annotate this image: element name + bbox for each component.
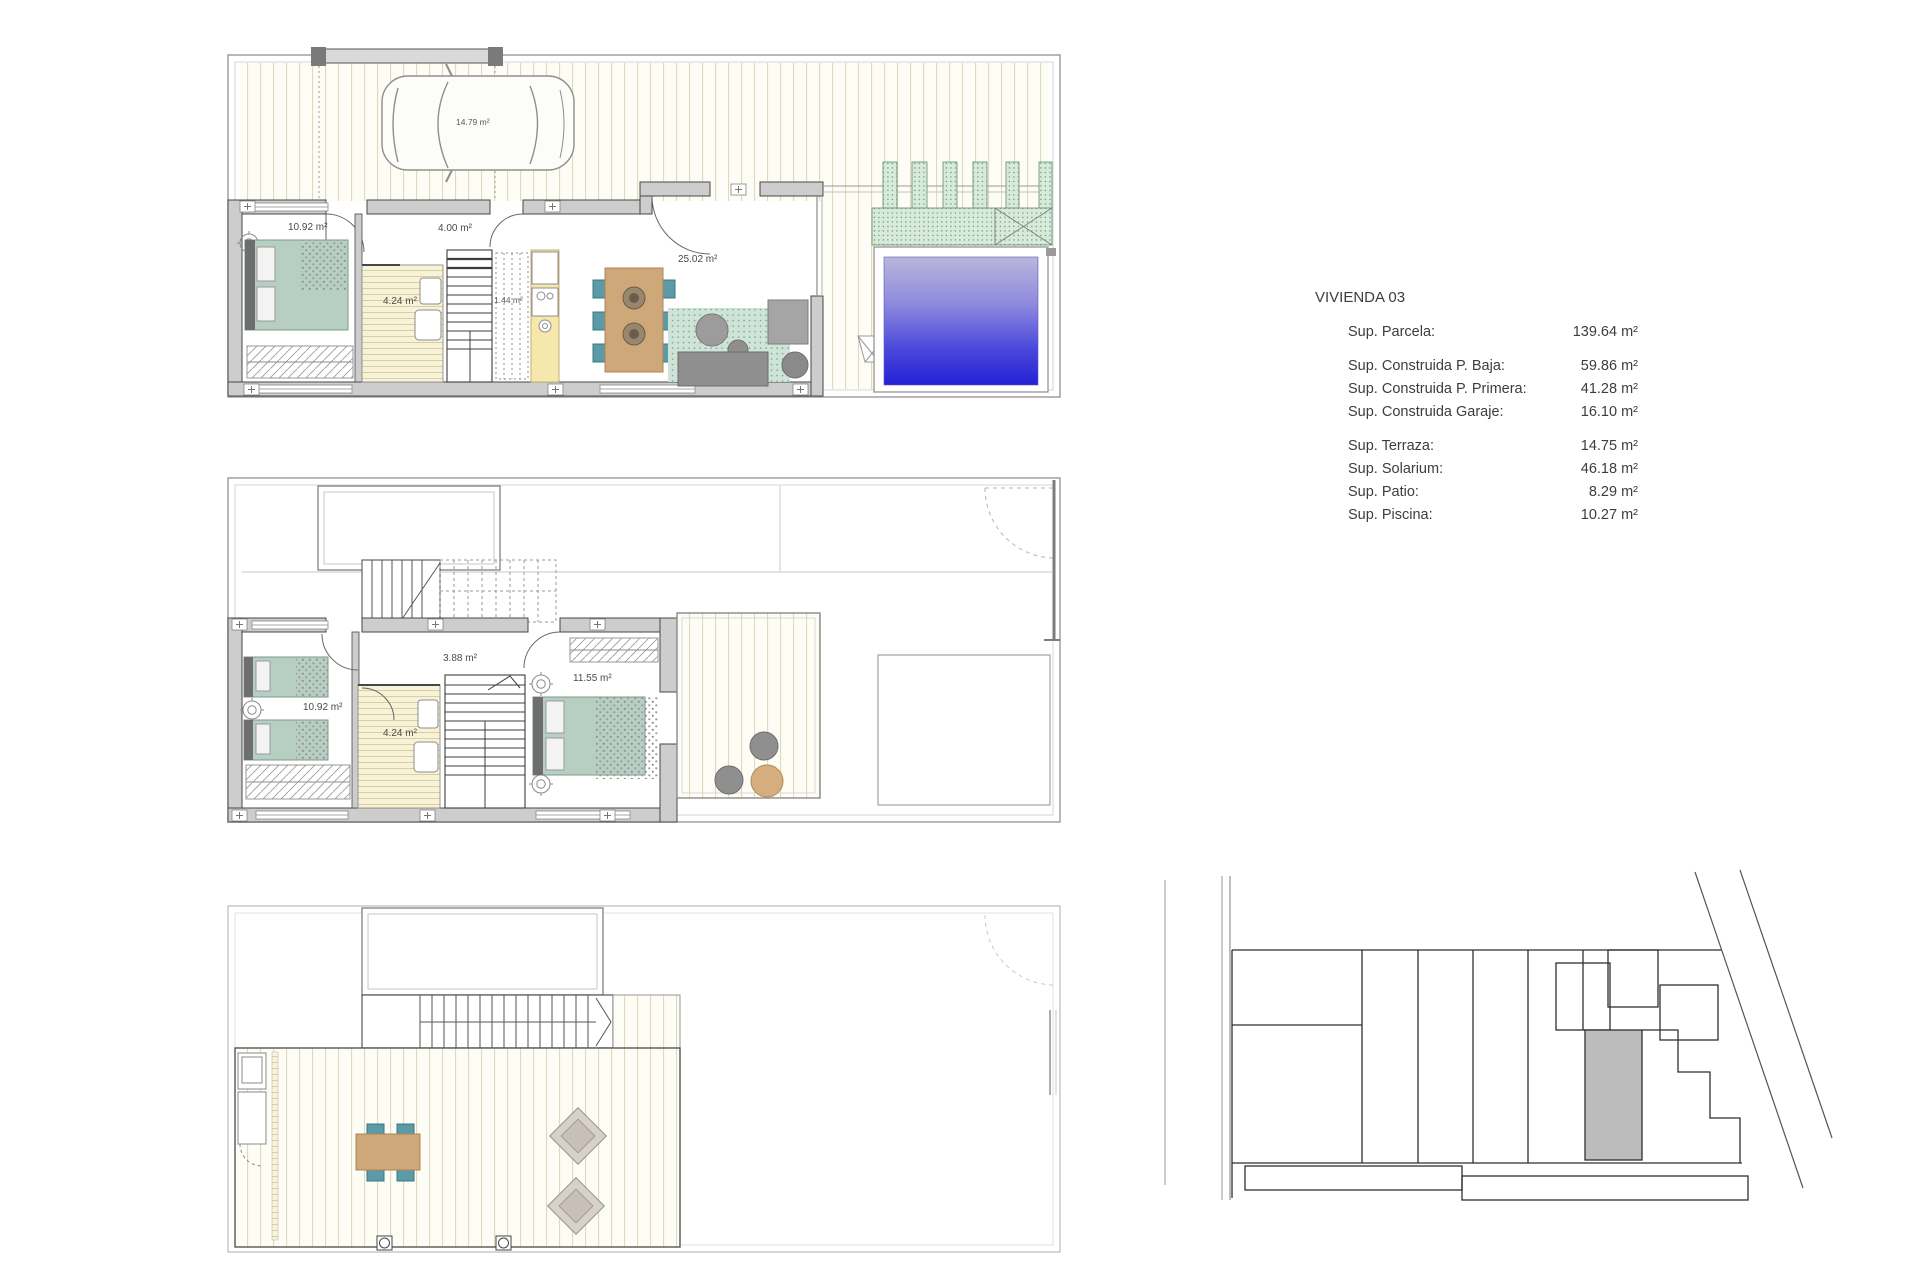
info-row-label: Sup. Solarium:	[1348, 461, 1443, 477]
info-row-label: Sup. Construida P. Primera:	[1348, 381, 1527, 397]
sofa	[678, 352, 768, 386]
bathroom-ground	[362, 265, 443, 382]
kitchen	[531, 250, 559, 382]
patio-outline	[878, 655, 1050, 805]
stairs-ground	[447, 250, 492, 382]
info-row-value: 8.29 m²	[1589, 484, 1638, 500]
drawing-canvas: 14.79 m²	[0, 0, 1920, 1280]
closet-area-label: 1.44 m²	[494, 295, 523, 305]
info-row-label: Sup. Patio:	[1348, 484, 1419, 500]
info-row-label: Sup. Construida Garaje:	[1348, 404, 1504, 420]
info-title: VIVIENDA 03	[1315, 289, 1405, 306]
info-row-label: Sup. Piscina:	[1348, 507, 1433, 523]
info-row-value: 46.18 m²	[1581, 461, 1638, 477]
diagonal-street	[1695, 872, 1803, 1188]
bedroom-area-label: 10.92 m²	[288, 222, 328, 233]
highlighted-plot	[1585, 1030, 1642, 1160]
pool	[874, 247, 1056, 392]
info-row-value: 10.27 m²	[1581, 507, 1638, 523]
bathroom-area-label: 4.24 m²	[383, 728, 418, 739]
stairs-to-solarium	[362, 995, 613, 1048]
hall-area-label: 4.00 m²	[438, 223, 473, 234]
bed-blanket-hatch	[300, 240, 348, 290]
info-row-value: 16.10 m²	[1581, 404, 1638, 420]
bathroom-upper	[358, 685, 440, 808]
info-row-label: Sup. Parcela:	[1348, 324, 1435, 340]
patio-door-swing-dashed	[985, 915, 1053, 985]
bathroom-area-label: 4.24 m²	[383, 296, 418, 307]
living-furniture	[668, 300, 808, 386]
armchair	[782, 352, 808, 378]
bedroom2-area-label: 11.55 m²	[573, 673, 612, 684]
window-marker	[240, 201, 255, 212]
terrace-table	[751, 765, 783, 797]
ground-floor-plan: 14.79 m²	[228, 47, 1060, 397]
info-row-value: 41.28 m²	[1581, 381, 1638, 397]
sidewalk-strips	[1232, 1163, 1748, 1200]
living-area-label: 25.02 m²	[678, 254, 718, 265]
first-floor-plan: 10.92 m² 3.88 m² 4.24 m²	[228, 478, 1060, 822]
terrace-chair	[715, 766, 743, 794]
terrace-chair	[750, 732, 778, 760]
info-row-label: Sup. Construida P. Baja:	[1348, 358, 1505, 374]
info-row-value: 139.64 m²	[1573, 324, 1638, 340]
plot-block	[1232, 950, 1742, 1163]
bedroom-ground	[237, 231, 353, 378]
garage-area-label: 14.79 m²	[456, 117, 490, 127]
deck-joint-strip	[272, 1052, 278, 1240]
patio-door-swing-dashed	[985, 488, 1053, 558]
dining-table	[593, 268, 675, 372]
info-row-value: 14.75 m²	[1581, 438, 1638, 454]
info-row-value: 59.86 m²	[1581, 358, 1638, 374]
info-row-label: Sup. Terraza:	[1348, 438, 1434, 454]
info-panel: VIVIENDA 03 Sup. Parcela: 139.64 m² Sup.…	[1315, 289, 1638, 523]
closet-ground	[496, 253, 528, 379]
stairs-upper	[445, 675, 525, 808]
solarium-plan	[228, 906, 1060, 1252]
site-plan	[1165, 870, 1832, 1200]
floorplan-sheet: 14.79 m²	[0, 0, 1920, 1280]
bedroom1-area-label: 10.92 m²	[303, 702, 343, 713]
garage-roof-outline	[318, 486, 500, 570]
hall-area-label: 3.88 m²	[443, 653, 478, 664]
terrace	[677, 613, 820, 798]
stairwell-roof-outline	[362, 908, 603, 995]
